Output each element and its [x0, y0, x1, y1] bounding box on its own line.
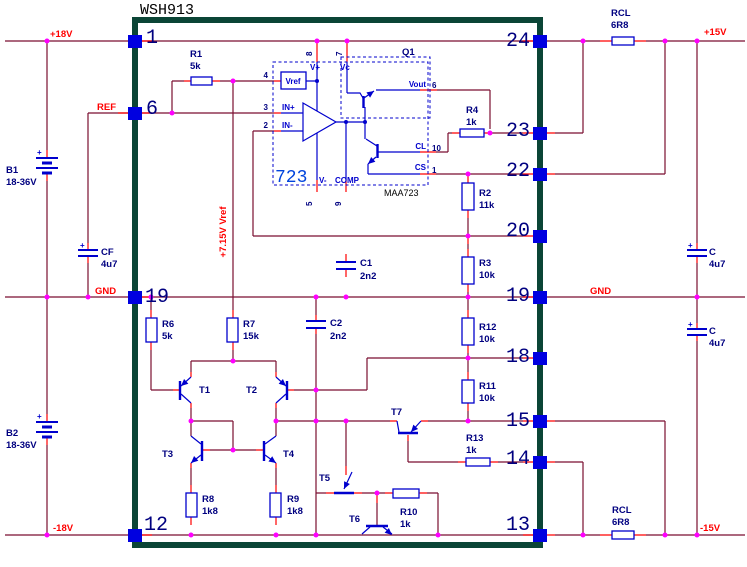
pin-number-6: 6: [146, 98, 158, 121]
label-c1: C1: [360, 258, 373, 269]
label-b2: B2: [6, 428, 18, 439]
label-r11: R11: [479, 381, 497, 392]
value-r12: 10k: [479, 334, 496, 345]
pin-square-24: [533, 35, 547, 48]
label-rcl-top: RCL: [611, 8, 631, 19]
pin-number-15: 15: [506, 410, 530, 433]
pin-square-13: [533, 529, 547, 542]
npn-arrow-t4: [268, 456, 276, 463]
label-r6: R6: [162, 319, 174, 330]
value-r10: 1k: [400, 519, 411, 530]
value-b1: 18-36V: [6, 177, 37, 188]
chip-pin-5: 5: [305, 201, 314, 206]
pin-number-19-right: 19: [506, 285, 530, 308]
resistor-r4-body: [460, 129, 484, 137]
pin-square-18: [533, 352, 547, 365]
resistor-r11-body: [462, 380, 474, 403]
value-r9: 1k8: [287, 506, 303, 517]
pin-square-6: [128, 107, 142, 120]
rail-label-gnd-right: GND: [590, 286, 611, 297]
value-rcl-top: 6R8: [611, 20, 628, 31]
label-t3: T3: [162, 449, 173, 460]
schematic-canvas: WSH913 +18V REF GND -18V +15V GND -15V +…: [0, 0, 747, 567]
label-b1: B1: [6, 165, 19, 176]
plus-sign-b2: +: [37, 412, 42, 421]
value-r8: 1k8: [202, 506, 218, 517]
pin-number-23: 23: [506, 120, 530, 143]
value-b2: 18-36V: [6, 440, 37, 451]
value-r2: 11k: [479, 200, 495, 211]
pin-number-22: 22: [506, 160, 530, 183]
module-title: WSH913: [140, 2, 194, 19]
pin-number-12: 12: [144, 514, 168, 537]
label-c-bottom: C: [709, 326, 716, 337]
rail-label-plus15v: +15V: [704, 27, 727, 38]
label-r2: R2: [479, 188, 491, 199]
rail-label-minus18v: -18V: [53, 523, 74, 534]
pin-number-13: 13: [506, 514, 530, 537]
rail-label-minus15v: -15V: [700, 523, 721, 534]
chip-pin-6: 6: [432, 81, 437, 90]
chip-label-vminus: V-: [319, 176, 327, 185]
value-c-top: 4u7: [709, 259, 725, 270]
resistor-r10-body: [393, 489, 419, 498]
label-t6: T6: [349, 514, 360, 525]
pin-number-18: 18: [506, 346, 530, 369]
plus-sign-cf: +: [80, 241, 85, 250]
opamp-triangle: [303, 103, 336, 141]
value-c1: 2n2: [360, 271, 376, 282]
pin-number-20: 20: [506, 220, 530, 243]
pin-square-14: [533, 456, 547, 469]
resistor-r13-body: [466, 458, 490, 466]
chip-label-comp: COMP: [335, 176, 360, 185]
chip-pin-7: 7: [335, 51, 344, 56]
pin-number-24: 24: [506, 30, 530, 53]
value-r3: 10k: [479, 270, 496, 281]
q1-label: Q1: [402, 47, 415, 58]
resistor-r7-body: [227, 318, 238, 342]
resistor-r8-body: [186, 493, 197, 517]
value-c-bottom: 4u7: [709, 338, 725, 349]
label-c2: C2: [330, 318, 342, 329]
chip-part-number: MAA723: [384, 188, 419, 198]
wires-blue: [181, 62, 421, 534]
chip-label-cl: CL: [415, 142, 426, 151]
resistor-rcl-bottom-body: [612, 531, 634, 539]
chip-label-vc: Vc: [340, 63, 350, 72]
label-t1: T1: [199, 385, 211, 396]
label-r13: R13: [466, 433, 483, 444]
pin-square-20: [533, 230, 547, 243]
rail-label-ref: REF: [97, 102, 116, 113]
chip-label-in-minus: IN-: [282, 121, 293, 130]
label-t5: T5: [319, 473, 331, 484]
chip-label-vplus: V+: [310, 63, 320, 72]
value-r11: 10k: [479, 393, 496, 404]
plus-sign-c-bottom: +: [688, 320, 693, 329]
chip-label-vout: Vout: [409, 80, 427, 89]
pin-number-14: 14: [506, 448, 530, 471]
pin-square-19-right: [533, 291, 547, 304]
chip-label-in-plus: IN+: [282, 103, 295, 112]
npn-arrow-t3: [191, 456, 198, 463]
chip-723-label: 723: [275, 168, 307, 188]
label-rcl-bottom: RCL: [612, 505, 632, 516]
label-vref-7v15: +7.15V Vref: [218, 206, 229, 258]
resistor-rcl-top-body: [612, 37, 634, 45]
label-r4: R4: [466, 105, 479, 116]
pin-square-1: [128, 35, 142, 48]
chip-pin-1: 1: [432, 166, 437, 175]
value-r1: 5k: [190, 61, 201, 72]
value-rcl-bottom: 6R8: [612, 517, 629, 528]
transistor-bars: [180, 96, 418, 526]
label-cf: CF: [101, 247, 114, 258]
label-r10: R10: [400, 507, 417, 518]
value-r6: 5k: [162, 331, 173, 342]
chip-pin-2: 2: [264, 121, 269, 130]
label-t7: T7: [391, 407, 402, 418]
chip-pin-4: 4: [264, 71, 269, 80]
resistor-r12-body: [462, 318, 474, 345]
chip-label-vref: Vref: [285, 77, 300, 86]
label-t4: T4: [283, 449, 295, 460]
chip-label-cs: CS: [415, 163, 427, 172]
chip-pin-9: 9: [334, 201, 343, 206]
value-c2: 2n2: [330, 331, 346, 342]
label-r8: R8: [202, 494, 214, 505]
plus-sign-c-top: +: [688, 241, 693, 250]
resistor-r3-body: [462, 257, 474, 284]
pin-square-23: [533, 127, 547, 140]
label-c-top: C: [709, 247, 716, 258]
value-r13: 1k: [466, 445, 477, 456]
label-r3: R3: [479, 258, 491, 269]
label-r1: R1: [190, 49, 203, 60]
label-r9: R9: [287, 494, 299, 505]
resistor-r1-body: [191, 77, 212, 85]
label-t2: T2: [246, 385, 257, 396]
pin-square-12: [128, 529, 142, 542]
chip-pin-3: 3: [264, 103, 269, 112]
pin-square-19-left: [128, 291, 142, 304]
value-r7: 15k: [243, 331, 260, 342]
transistor-arrows: [181, 91, 418, 535]
rail-label-plus18v: +18V: [50, 29, 73, 40]
pin-number-1: 1: [146, 27, 158, 50]
chip-pin-8: 8: [305, 51, 314, 56]
resistor-r6-body: [146, 318, 157, 342]
chip-pin-10: 10: [432, 144, 441, 153]
npn-arrow-q1: [366, 91, 374, 98]
resistor-bodies: [146, 37, 634, 539]
resistor-r2-body: [462, 183, 474, 210]
rail-label-gnd-left: GND: [95, 286, 116, 297]
value-r4: 1k: [466, 117, 477, 128]
pin-square-15: [533, 415, 547, 428]
value-cf: 4u7: [101, 259, 117, 270]
label-r12: R12: [479, 322, 496, 333]
resistor-r9-body: [270, 493, 281, 517]
circuit-schematic: WSH913 +18V REF GND -18V +15V GND -15V +…: [0, 0, 747, 567]
label-r7: R7: [243, 319, 255, 330]
plus-sign-b1: +: [37, 148, 42, 157]
pin-square-22: [533, 168, 547, 181]
pin-number-19-left: 19: [145, 286, 169, 309]
